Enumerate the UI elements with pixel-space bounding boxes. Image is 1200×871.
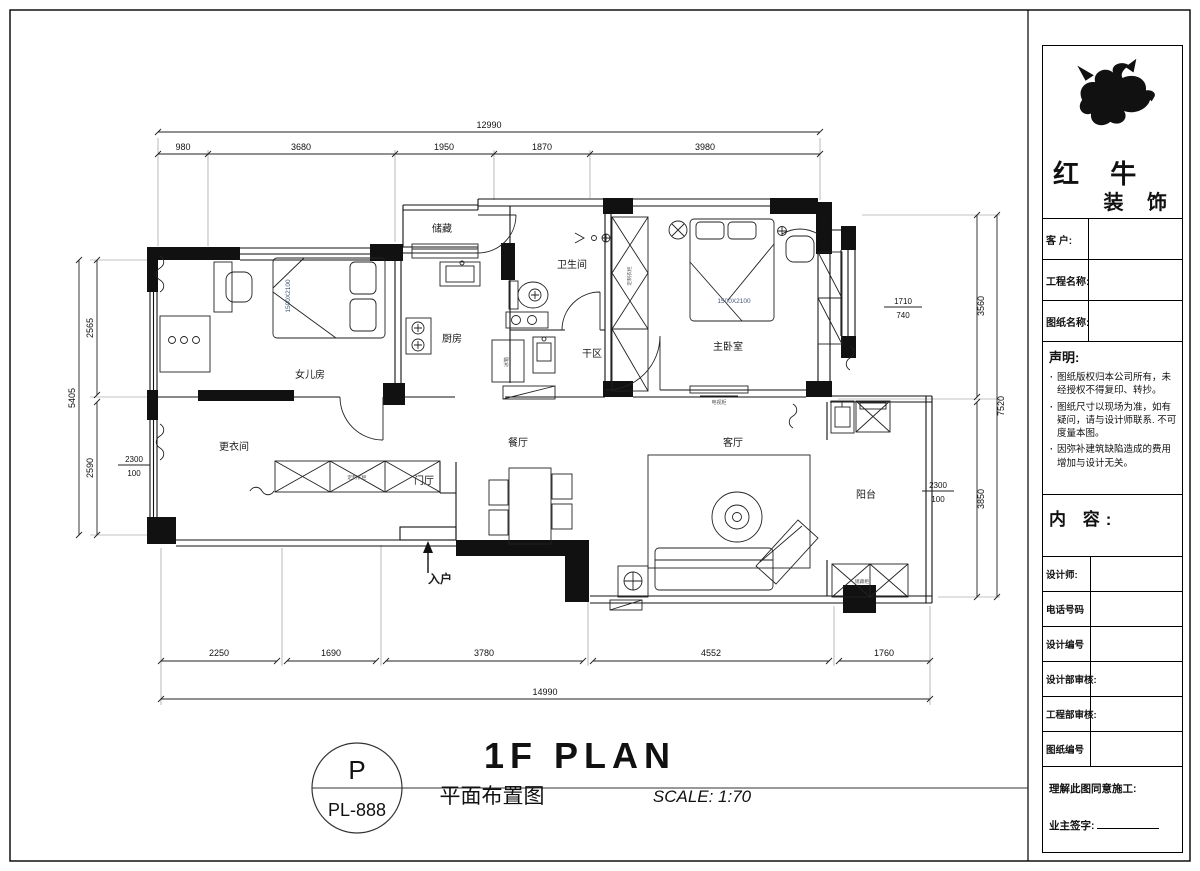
field-drawing-name: 图纸名称: [1043, 301, 1182, 342]
sheet-frame [10, 10, 1190, 861]
dim-top-total: 12990 [476, 120, 501, 130]
row-designer: 设计师: [1043, 557, 1182, 592]
room-label-dry-area: 干区 [582, 348, 602, 360]
signature-line[interactable] [1097, 818, 1159, 829]
row-phone: 电话号码 [1043, 592, 1182, 627]
field-project-name: 工程名称: [1043, 260, 1182, 301]
content-heading: 内 容: [1043, 495, 1182, 557]
entry-label: 入户 [428, 571, 452, 586]
statement-item: 图纸尺寸以现场为准，如有疑问，请与设计师联系. 不可度量本图。 [1049, 401, 1178, 441]
row-phone-value[interactable] [1091, 592, 1182, 626]
dim-window-fraction-top: 1710 [894, 297, 912, 306]
row-design-audit-value[interactable] [1091, 662, 1182, 696]
dim-window-fraction-bottom: 740 [896, 311, 910, 320]
room-label-daughter: 女儿房 [295, 368, 325, 381]
row-design-number: 设计编号 [1043, 627, 1182, 662]
sheet-title-group: P PL-888 1F PLAN 平面布置图 SCALE: 1:70 [312, 735, 1028, 833]
bull-logo-icon [1065, 54, 1161, 150]
dim-top-seg-3: 1870 [532, 142, 552, 152]
field-drawing-name-value[interactable] [1089, 301, 1182, 341]
drawing-code-number: PL-888 [328, 800, 386, 820]
dim-top-seg-2: 1950 [434, 142, 454, 152]
dim-right-lower: 3850 [976, 489, 986, 509]
dim-top-seg-0: 980 [175, 142, 190, 152]
dim-bottom-total: 14990 [532, 687, 557, 697]
row-design-number-label: 设计编号 [1043, 627, 1091, 661]
dim-right-total: 7520 [996, 396, 1006, 416]
row-phone-label: 电话号码 [1043, 592, 1091, 626]
plan-title-cn: 平面布置图 [440, 785, 545, 808]
dim-right-fraction-top: 2300 [929, 481, 947, 490]
row-engineering-audit-value[interactable] [1091, 697, 1182, 731]
bed-size-label-daughter: 1500X2100 [285, 279, 292, 313]
statement-item: 因弥补建筑缺陷造成的费用增加与设计无关。 [1049, 443, 1178, 470]
dim-bottom-seg-2: 3780 [474, 648, 494, 658]
curtain-symbols [156, 256, 854, 495]
extension-lines [90, 138, 1000, 705]
room-label-dressing: 更衣间 [219, 440, 249, 453]
field-project-name-value[interactable] [1089, 260, 1182, 300]
field-customer: 客 户: [1043, 219, 1182, 260]
field-project-name-label: 工程名称: [1043, 260, 1089, 300]
dim-bottom-seg-3: 4552 [701, 648, 721, 658]
plan-title-en: 1F PLAN [484, 735, 676, 776]
owner-signature-label: 业主签字: [1049, 820, 1095, 832]
row-drawing-number-label: 图纸编号 [1043, 732, 1091, 766]
dim-right-fraction-bottom: 100 [931, 495, 945, 504]
row-design-audit-label: 设计部审核: [1043, 662, 1091, 696]
dimension-lines [76, 129, 1000, 702]
field-customer-value[interactable] [1089, 219, 1182, 259]
dim-bottom-seg-1: 1690 [321, 648, 341, 658]
dim-left-lower: 2590 [85, 458, 95, 478]
row-engineering-audit-label: 工程部审核: [1043, 697, 1091, 731]
dim-right-upper: 3560 [976, 296, 986, 316]
room-label-master: 主卧室 [713, 340, 743, 353]
row-designer-label: 设计师: [1043, 557, 1091, 591]
dim-top-seg-4: 3980 [695, 142, 715, 152]
wardrobe-label: 定制衣柜 [626, 266, 633, 285]
signature-section: 理解此图同意施工: 业主签字: [1043, 767, 1182, 852]
statement-item: 图纸版权归本公司所有，未经授权不得复印、转抄。 [1049, 371, 1178, 398]
floor-plan-canvas: 女儿房 更衣间 门厅 餐厅 厨房 储藏 卫生间 干区 主卧室 客厅 阳台 入户 … [0, 0, 1200, 871]
drawing-code-letter: P [348, 755, 365, 785]
field-customer-label: 客 户: [1043, 219, 1089, 259]
room-label-balcony: 阳台 [856, 488, 876, 501]
company-logo: 红 牛 装 饰 [1043, 46, 1182, 219]
field-drawing-name-label: 图纸名称: [1043, 301, 1089, 341]
plan-scale: SCALE: 1:70 [653, 787, 752, 806]
dim-bottom-seg-4: 1760 [874, 648, 894, 658]
drawing-sheet: 女儿房 更衣间 门厅 餐厅 厨房 储藏 卫生间 干区 主卧室 客厅 阳台 入户 … [0, 0, 1200, 871]
row-design-number-value[interactable] [1091, 627, 1182, 661]
statement-heading: 声明: [1049, 347, 1178, 366]
row-design-audit: 设计部审核: [1043, 662, 1182, 697]
dim-bottom-seg-0: 2250 [209, 648, 229, 658]
wardrobe-row-label: 定制衣柜 [347, 474, 366, 481]
room-label-foyer: 门厅 [414, 474, 434, 487]
room-labels: 女儿房 更衣间 门厅 餐厅 厨房 储藏 卫生间 干区 主卧室 客厅 阳台 入户 [219, 222, 876, 586]
dim-left-total: 5405 [67, 388, 77, 408]
room-label-bathroom: 卫生间 [557, 258, 587, 271]
room-label-living: 客厅 [723, 436, 743, 449]
dim-left-fraction-bottom: 100 [127, 469, 141, 478]
statement-section: 声明: 图纸版权归本公司所有，未经授权不得复印、转抄。 图纸尺寸以现场为准，如有… [1043, 342, 1182, 495]
row-drawing-number-value[interactable] [1091, 732, 1182, 766]
dim-left-upper: 2565 [85, 318, 95, 338]
room-label-storage: 储藏 [432, 222, 452, 235]
title-block: 红 牛 装 饰 客 户: 工程名称: 图纸名称: 声明: 图纸版权归本公司所有，… [1042, 45, 1183, 853]
row-engineering-audit: 工程部审核: [1043, 697, 1182, 732]
room-label-dining: 餐厅 [508, 436, 528, 449]
fridge-label: 冰箱 [503, 357, 510, 367]
row-designer-value[interactable] [1091, 557, 1182, 591]
approval-text: 理解此图同意施工: [1049, 781, 1178, 796]
balcony-cabinet-label: 储藏柜 [855, 578, 870, 585]
dim-top-seg-1: 3680 [291, 142, 311, 152]
tv-cabinet-label: 电视柜 [711, 399, 726, 406]
dim-left-fraction-top: 2300 [125, 455, 143, 464]
logo-text-line2: 装 饰 [1103, 186, 1176, 215]
room-label-kitchen: 厨房 [442, 332, 462, 345]
row-drawing-number: 图纸编号 [1043, 732, 1182, 767]
bed-size-label-master: 1500X2100 [717, 298, 751, 305]
